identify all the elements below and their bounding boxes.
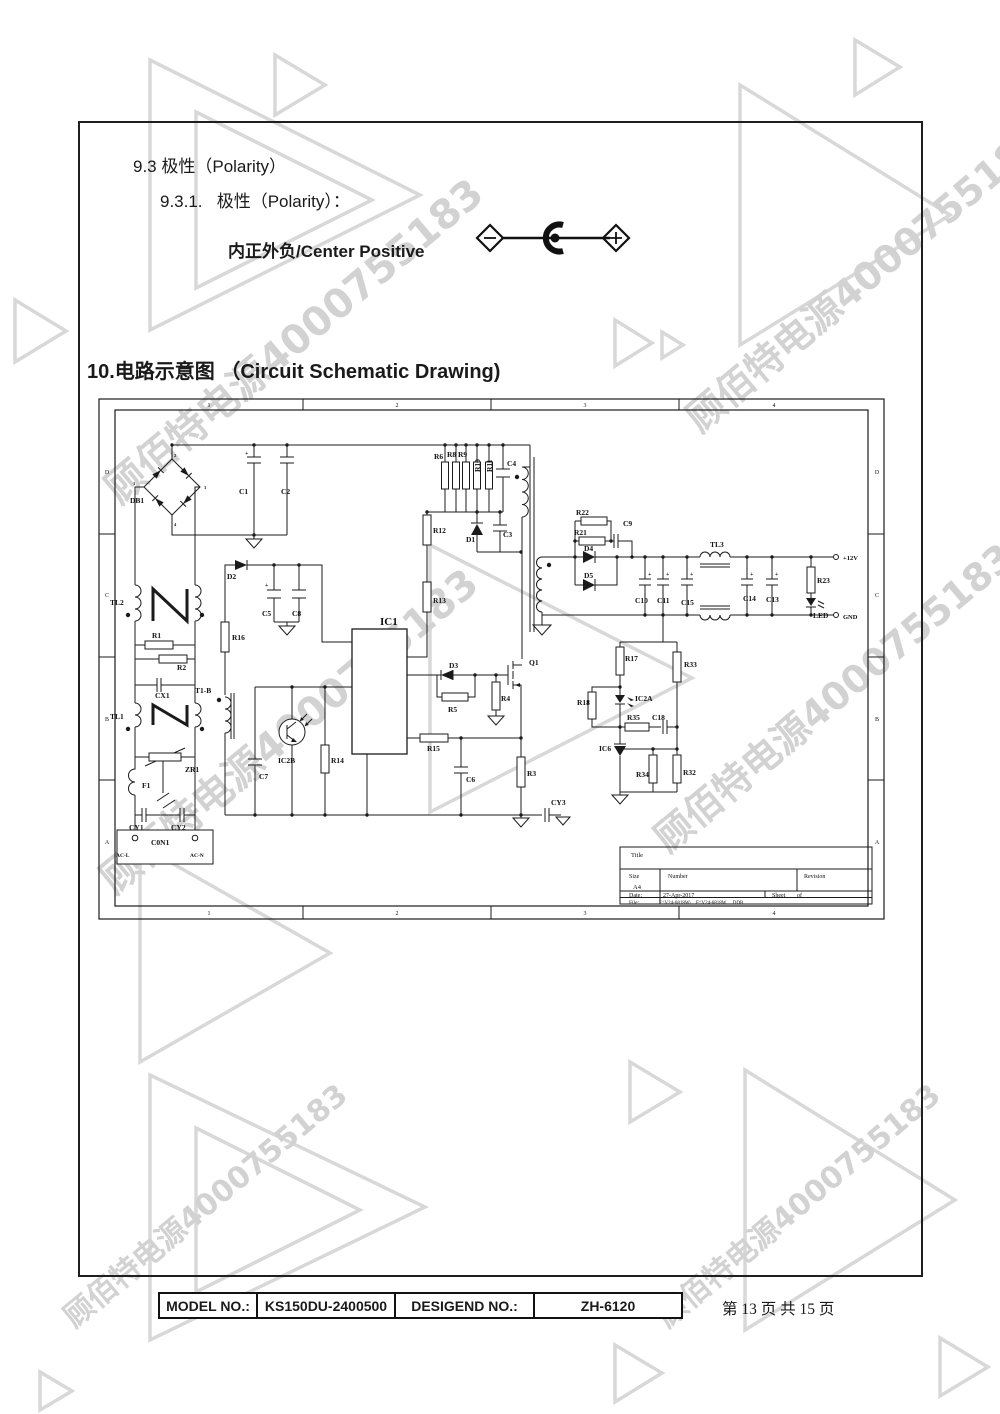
component-label: + <box>245 451 249 457</box>
component-label: R14 <box>331 756 344 765</box>
title-block <box>620 847 872 904</box>
component-label: GND <box>843 614 858 621</box>
component-label: 1 <box>208 403 211 409</box>
component-label: 4 <box>773 911 776 917</box>
model-no-label: MODEL NO.: <box>160 1294 256 1317</box>
center-positive-label: 内正外负/Center Positive <box>228 237 425 262</box>
polarity-symbol <box>468 216 638 260</box>
component-label: B <box>105 717 109 723</box>
component-label: R34 <box>636 770 649 779</box>
section-10-heading: 10.电路示意图 （Circuit Schematic Drawing) <box>87 355 500 384</box>
component-label: C8 <box>292 609 301 618</box>
component-label: R12 <box>433 526 446 535</box>
component-label: 2 <box>174 453 177 458</box>
component-label: TL3 <box>710 540 724 549</box>
component-label: 1 <box>208 911 211 917</box>
component-label: CY3 <box>551 798 566 807</box>
component-label: TL2 <box>110 598 124 607</box>
component-label: Date: <box>629 893 642 899</box>
component-label: + <box>648 572 652 578</box>
component-label: C13 <box>766 595 779 604</box>
model-no-value: KS150DU-2400500 <box>256 1294 394 1317</box>
component-label: F:\V24-6818W\…F:\V24-6818W….DDB <box>659 901 744 906</box>
component-label: 4 <box>174 522 177 527</box>
component-label: IC2B <box>278 756 295 765</box>
component-label: C7 <box>259 772 268 781</box>
component-label: R11 <box>485 459 494 472</box>
component-label: R33 <box>684 660 697 669</box>
component-label: Revision <box>804 874 825 880</box>
component-label: R3 <box>527 769 536 778</box>
component-label: 2 <box>396 911 399 917</box>
component-label: D2 <box>227 572 236 581</box>
component-label: R23 <box>817 576 830 585</box>
component-label: R32 <box>683 768 696 777</box>
component-label: + <box>775 572 779 578</box>
component-label: D3 <box>449 661 458 670</box>
component-label: D1 <box>466 535 475 544</box>
design-no-value: ZH-6120 <box>533 1294 681 1317</box>
component-label: T1-B <box>195 686 211 695</box>
component-label: 2 <box>396 403 399 409</box>
component-label: C1 <box>239 487 248 496</box>
component-label: R10 <box>473 459 482 472</box>
component-label: + <box>750 572 754 578</box>
component-label: D <box>875 470 880 476</box>
component-label: C3 <box>503 530 512 539</box>
component-label: D <box>105 470 110 476</box>
component-label: AC-L <box>116 853 130 859</box>
component-label: ZR1 <box>185 765 199 774</box>
component-label: Size <box>629 874 640 880</box>
component-label: LED <box>813 611 829 620</box>
component-label: Sheet <box>772 893 786 899</box>
component-label: + <box>690 572 694 578</box>
component-label: A <box>875 840 880 846</box>
component-label: C9 <box>623 519 632 528</box>
component-label: R6 <box>434 452 443 461</box>
component-label: of <box>797 892 802 899</box>
component-label: DB1 <box>130 496 144 505</box>
component-label: +12V <box>843 555 858 562</box>
component-label: R8 <box>447 450 456 459</box>
component-label: C <box>875 593 879 599</box>
component-label: A4 <box>633 884 642 891</box>
component-label: File: <box>629 900 640 906</box>
component-label: R2 <box>177 663 186 672</box>
component-label: R18 <box>577 698 590 707</box>
component-label: C5 <box>262 609 271 618</box>
component-label: R21 <box>574 528 587 537</box>
component-label: 3 <box>584 911 587 917</box>
page-number: 第 13 页 共 15 页 <box>722 1297 834 1319</box>
component-label: C4 <box>507 459 516 468</box>
component-label: R35 <box>627 713 640 722</box>
component-label: C6 <box>466 775 475 784</box>
section-9-3-heading: 9.3 极性（Polarity） <box>133 152 286 177</box>
component-label: 3 <box>204 485 207 490</box>
component-label: R1 <box>152 631 161 640</box>
component-label: + <box>666 572 670 578</box>
document-page: 顾佰特电源4000755183顾佰特电源4000755183顾佰特电源40007… <box>0 0 1000 1414</box>
component-label: Title <box>631 852 643 859</box>
component-label: IC6 <box>599 744 611 753</box>
component-label: R9 <box>458 450 467 459</box>
component-label: A <box>105 840 110 846</box>
component-label: Q1 <box>529 658 539 667</box>
component-label: R13 <box>433 596 446 605</box>
component-label: R22 <box>576 508 589 517</box>
component-label: R4 <box>501 694 510 703</box>
component-label: R17 <box>625 654 638 663</box>
component-label: R16 <box>232 633 245 642</box>
component-label: R5 <box>448 705 457 714</box>
component-label: 3 <box>584 403 587 409</box>
component-label: C15 <box>681 598 694 607</box>
component-label: CX1 <box>155 691 170 700</box>
component-label: C11 <box>657 596 670 605</box>
component-label: IC1 <box>380 616 398 628</box>
component-label: CY1 <box>129 823 144 832</box>
component-label: + <box>265 583 269 589</box>
component-label: C0N1 <box>151 838 170 847</box>
section-9-3-1-heading: 9.3.1. 极性（Polarity）： <box>160 187 350 212</box>
component-label: D5 <box>584 571 593 580</box>
component-label: C18 <box>652 713 665 722</box>
schematic-drawing: 12341234DCBADCBADB11234C1C2+TL2R1R2CX1TL… <box>97 397 887 921</box>
component-label: Number <box>668 874 688 880</box>
component-label: C2 <box>281 487 290 496</box>
component-label: AC-N <box>190 853 204 859</box>
component-label: TL1 <box>110 712 124 721</box>
component-label: 1 <box>133 481 136 486</box>
component-label: 4 <box>773 403 776 409</box>
component-label: 27-Apr-2017 <box>663 893 694 899</box>
design-no-label: DESIGEND NO.: <box>394 1294 533 1317</box>
component-label: R15 <box>427 744 440 753</box>
component-label: C14 <box>743 594 756 603</box>
component-label: D4 <box>584 544 593 553</box>
component-label: B <box>875 717 879 723</box>
footer-model-table: MODEL NO.: KS150DU-2400500 DESIGEND NO.:… <box>158 1292 683 1319</box>
component-label: C10 <box>635 596 648 605</box>
component-label: IC2A <box>635 694 653 703</box>
component-label: F1 <box>142 781 151 790</box>
component-label: CY2 <box>171 823 186 832</box>
component-label: C <box>105 593 109 599</box>
